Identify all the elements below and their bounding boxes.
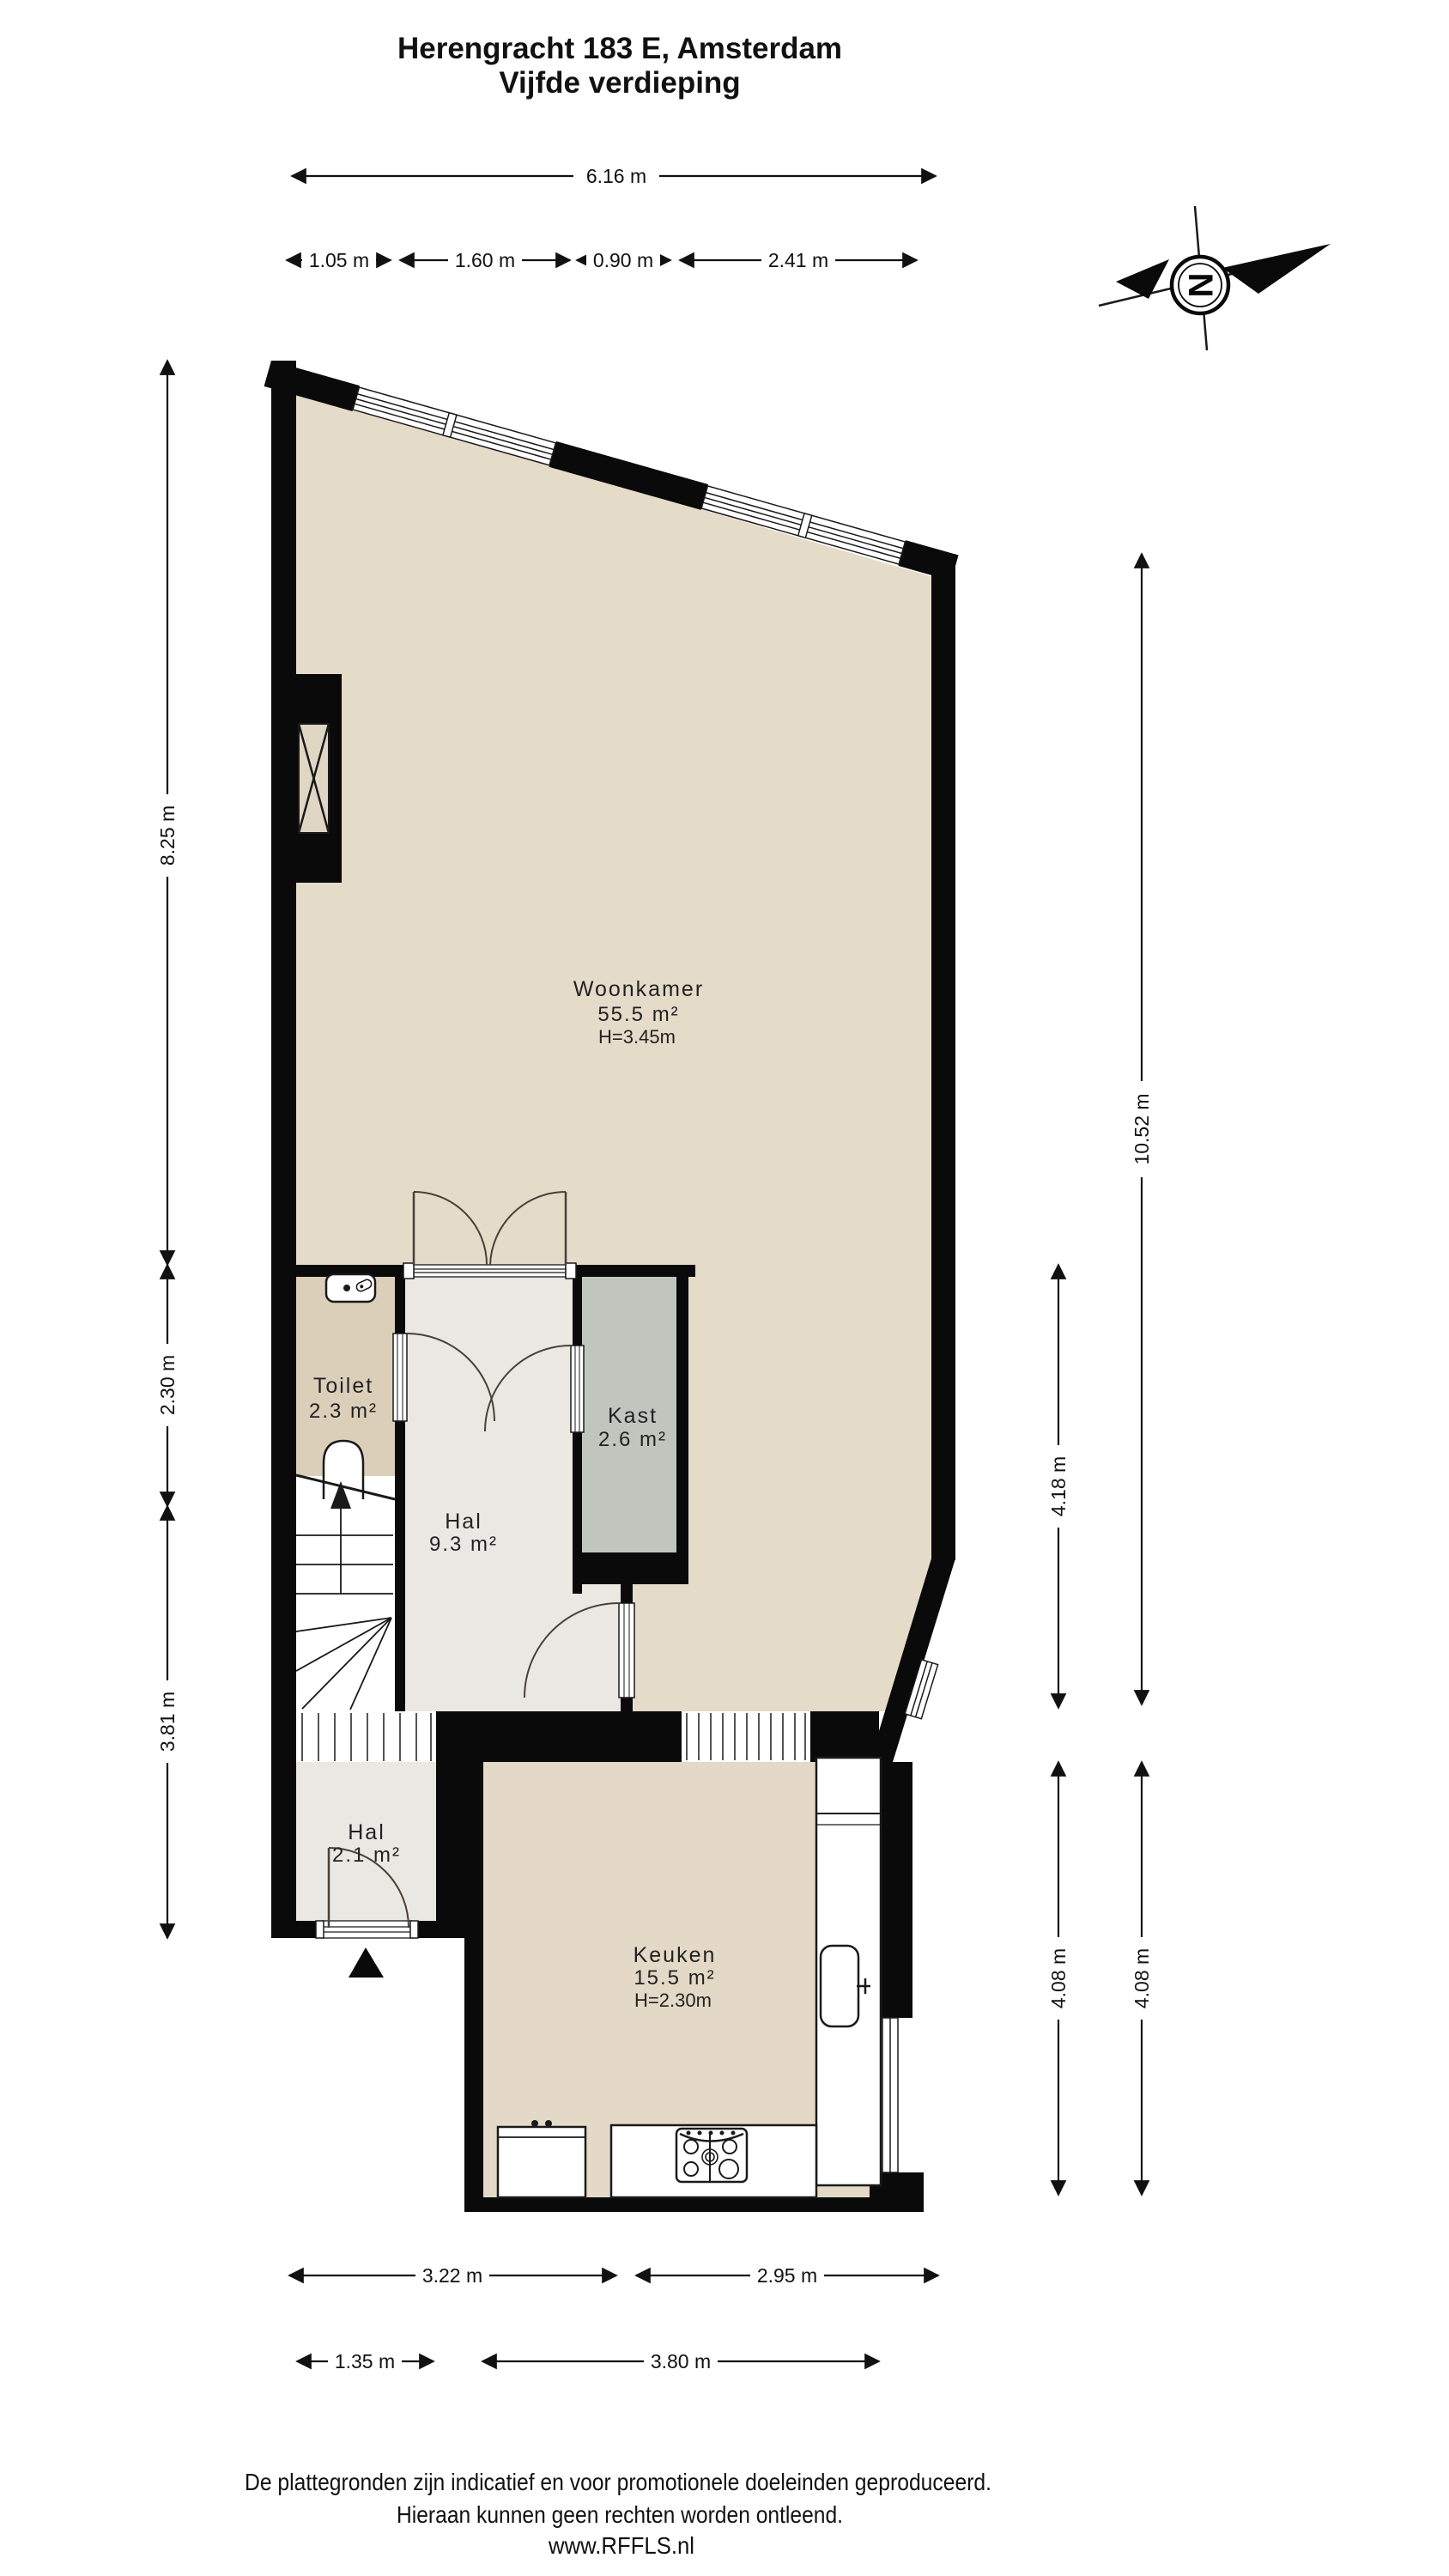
- dim-bottom-upper-1: 3.22 m: [422, 2264, 482, 2287]
- compass-north-arrow: [1222, 244, 1331, 294]
- compass-letter: N: [1181, 273, 1219, 298]
- compass-west-point: [1116, 259, 1169, 299]
- keuken-label: Keuken: [634, 1943, 717, 1967]
- wall-keuken-top-left: [436, 1711, 682, 1762]
- wall-kast-left-a: [573, 1277, 582, 1346]
- toilet-label: Toilet: [313, 1374, 373, 1398]
- hal2-steps: [298, 1711, 435, 1762]
- hal-area: 9.3 m²: [429, 1533, 498, 1556]
- dim-right-inner-2: 4.08 m: [1047, 1948, 1070, 2008]
- kitchen-counter-right: [816, 1758, 881, 2185]
- dim-top-3: 0.90 m: [593, 249, 653, 271]
- shaft-box: [299, 724, 329, 833]
- dim-right-outer-1: 10.52 m: [1131, 1093, 1153, 1164]
- woonkamer-height: H=3.45m: [598, 1026, 676, 1048]
- front-door-threshold: [316, 1921, 418, 1938]
- toilet-area: 2.3 m²: [309, 1400, 378, 1423]
- wall-hal2-bottom-right: [412, 1921, 483, 1938]
- wall-hal-door-b: [621, 1698, 633, 1711]
- kast-label: Kast: [608, 1404, 658, 1428]
- wall-toilet-right-a: [395, 1277, 405, 1334]
- wall-keuken-bottom: [464, 2197, 924, 2212]
- compass: N: [1099, 206, 1331, 350]
- footer-website: www.RFFLS.nl: [548, 2532, 694, 2559]
- dim-left-2: 2.30 m: [156, 1355, 179, 1415]
- double-door-threshold: [403, 1263, 576, 1279]
- wall-hal-door-a: [621, 1584, 633, 1603]
- wall-keuken-left: [464, 1938, 483, 2212]
- wall-toilet-right-b: [395, 1421, 405, 1711]
- page-title: Herengracht 183 E, Amsterdam: [397, 32, 842, 65]
- kitchen-appliance-left: [498, 2120, 585, 2197]
- keuken-passage: [682, 1711, 810, 1762]
- woonkamer-label: Woonkamer: [573, 977, 704, 1001]
- dim-top-4: 2.41 m: [768, 249, 828, 271]
- dim-right-inner-1: 4.18 m: [1047, 1456, 1070, 1516]
- dim-left-1: 8.25 m: [156, 805, 179, 866]
- keuken-height: H=2.30m: [634, 1990, 712, 2011]
- kitchen-sink: [821, 1946, 858, 2026]
- toilet-sink: [326, 1274, 375, 1302]
- footer-line2: Hieraan kunnen geen rechten worden ontle…: [397, 2501, 843, 2528]
- wall-kast-right: [676, 1265, 688, 1584]
- wall-hal2-bottom-left: [271, 1921, 322, 1938]
- stove: [676, 2129, 747, 2182]
- dim-bottom-lower-1: 1.35 m: [335, 2350, 395, 2372]
- wall-left: [271, 361, 296, 1938]
- wall-column-left: [436, 1762, 483, 1938]
- wall-kast-bottom: [573, 1552, 688, 1584]
- dim-top-1: 1.05 m: [309, 249, 369, 271]
- floorplan-page: Herengracht 183 E, Amsterdam Vijfde verd…: [0, 0, 1449, 2576]
- hal2-label: Hal: [348, 1820, 385, 1844]
- footer: De plattegronden zijn indicatief en voor…: [245, 2469, 991, 2559]
- woonkamer-area: 55.5 m²: [597, 1003, 679, 1026]
- page-subtitle: Vijfde verdieping: [499, 66, 740, 100]
- keuken-area: 15.5 m²: [634, 1966, 715, 1990]
- dim-bottom-lower-2: 3.80 m: [651, 2350, 711, 2372]
- dim-bottom-upper-2: 2.95 m: [757, 2264, 817, 2287]
- wall-keuken-top-right: [810, 1711, 879, 1762]
- hal-label: Hal: [445, 1510, 482, 1534]
- footer-line1: De plattegronden zijn indicatief en voor…: [245, 2469, 991, 2495]
- kitchen-counter-bottom: [611, 2125, 816, 2197]
- entrance-arrow: [349, 1947, 384, 1978]
- hal2-area: 2.1 m²: [332, 1844, 401, 1867]
- dim-left-3: 3.81 m: [156, 1692, 179, 1752]
- wall-right: [931, 554, 955, 1560]
- dim-top-total: 6.16 m: [586, 165, 646, 187]
- dim-top-2: 1.60 m: [455, 249, 515, 271]
- dim-right-outer-2: 4.08 m: [1131, 1948, 1153, 2008]
- floorplan-svg: Herengracht 183 E, Amsterdam Vijfde verd…: [0, 0, 1449, 2576]
- kast-area: 2.6 m²: [598, 1428, 667, 1451]
